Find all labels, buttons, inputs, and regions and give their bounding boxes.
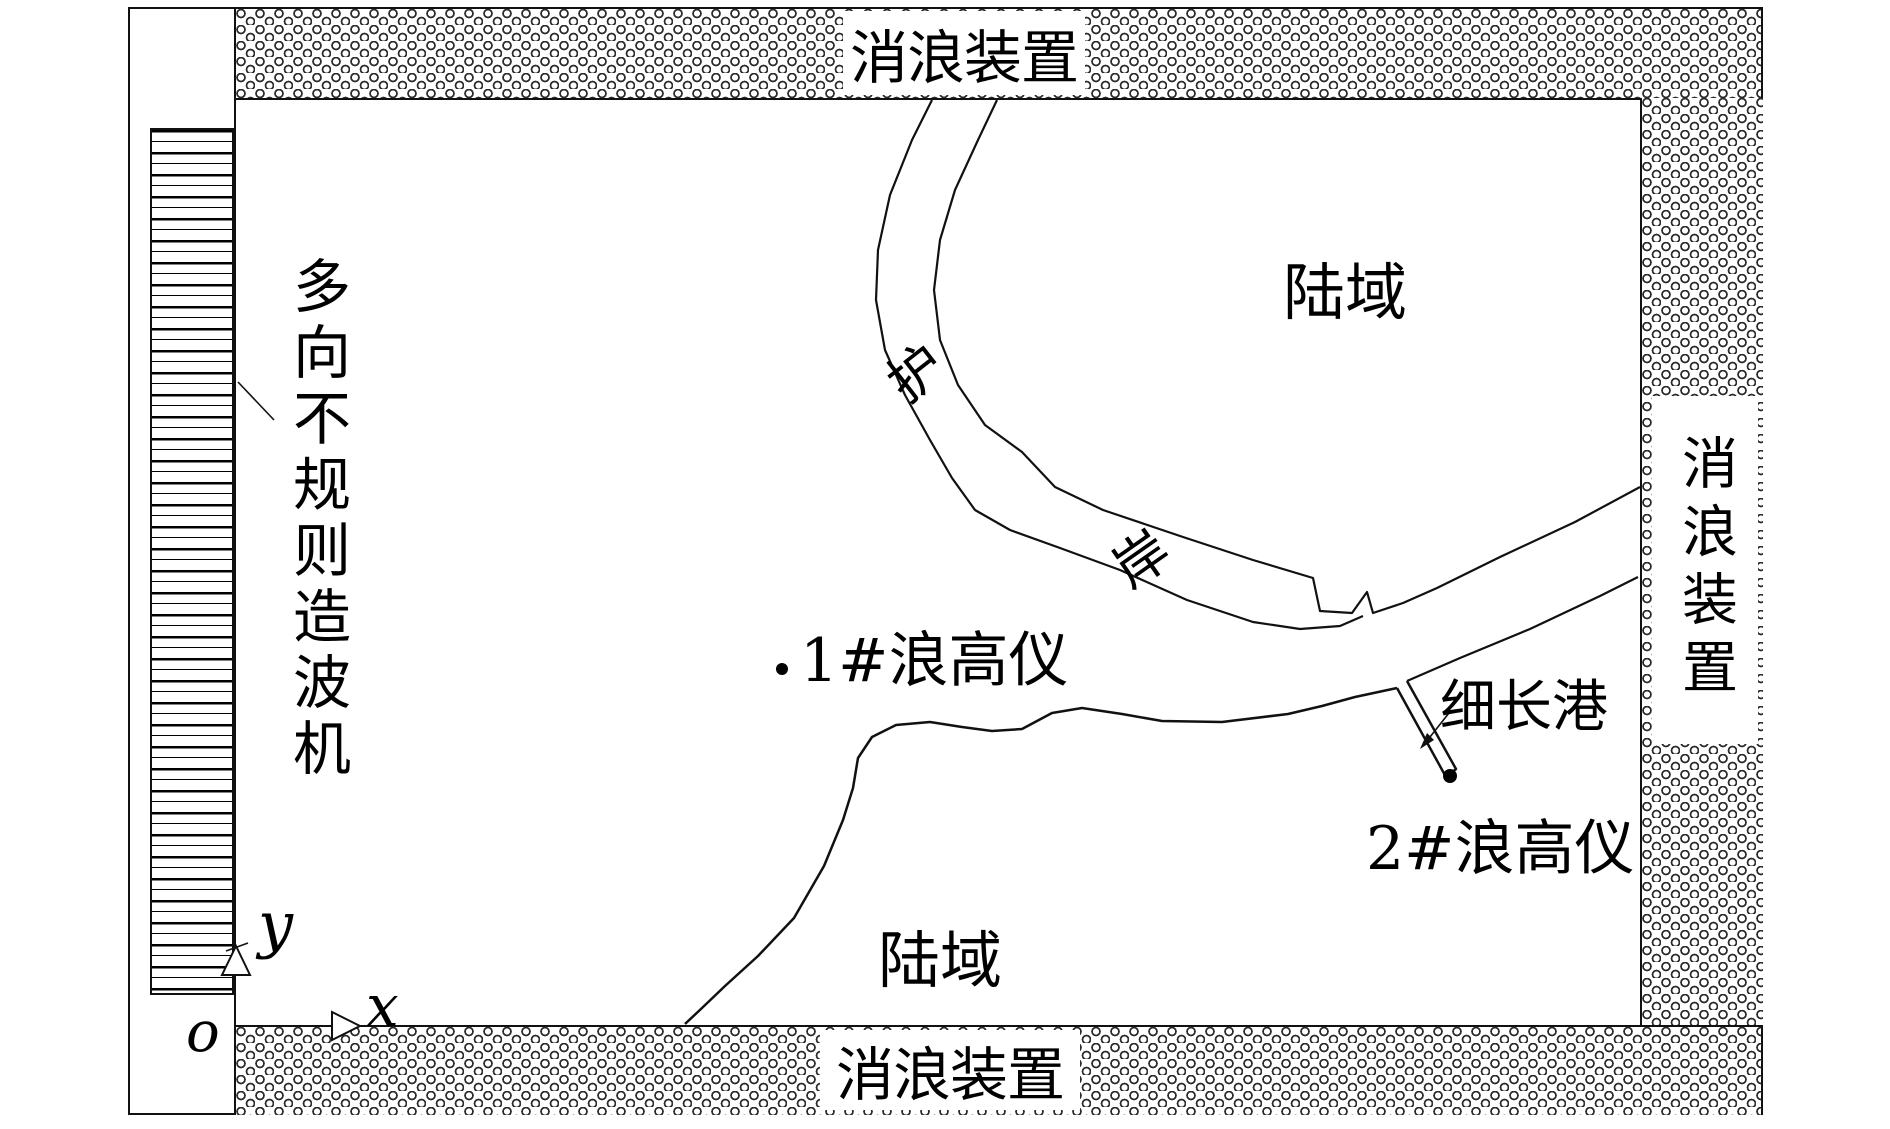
wavemaker-leader-line	[238, 382, 274, 420]
wave-gauge-1-dot	[776, 663, 788, 675]
lower-land-shoreline	[685, 688, 1397, 1024]
x-axis-arrowhead	[332, 1012, 360, 1040]
axis-y-label: y	[258, 888, 293, 961]
wave-gauge-2-label: 2#浪高仪	[1366, 800, 1634, 887]
land-area-upper-label: 陆域	[1283, 242, 1407, 332]
axis-x-label: x	[366, 972, 399, 1040]
narrow-harbor-label: 细长港	[1440, 662, 1608, 743]
figure-wave-basin-layout: 多向不规则造波机 消浪装置 消浪装置 消浪装置 陆域 陆域 1#浪高仪	[0, 0, 1890, 1129]
axis-origin-label: o	[186, 1000, 220, 1065]
channel-northeast-shoreline	[934, 100, 1640, 613]
wave-gauge-2-dot	[1443, 769, 1457, 783]
land-area-lower-label: 陆域	[878, 910, 1002, 1000]
wave-gauge-1-label: 1#浪高仪	[800, 612, 1068, 699]
